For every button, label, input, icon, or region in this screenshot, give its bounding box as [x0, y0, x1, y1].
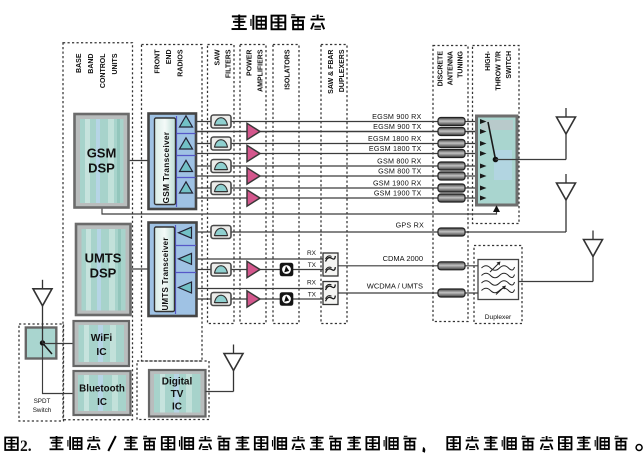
svg-text:EGSM 900 TX: EGSM 900 TX	[373, 122, 421, 131]
svg-text:END: END	[166, 50, 173, 65]
svg-text:DSP: DSP	[88, 161, 115, 176]
svg-text:TX: TX	[308, 292, 317, 299]
svg-text:2.: 2.	[20, 438, 32, 455]
svg-text:IC: IC	[172, 402, 182, 413]
svg-text:DISCRETE: DISCRETE	[438, 51, 445, 87]
svg-text:CONTROL: CONTROL	[100, 53, 107, 88]
svg-text:TV: TV	[171, 389, 184, 400]
svg-text:Switch: Switch	[33, 407, 52, 414]
svg-text:BASE: BASE	[76, 53, 83, 73]
svg-text:POWER: POWER	[247, 50, 254, 76]
svg-text:SPDT: SPDT	[34, 398, 51, 405]
svg-text:DSP: DSP	[90, 266, 117, 281]
svg-text:Bluetooth: Bluetooth	[79, 384, 125, 395]
svg-text:FRONT: FRONT	[155, 49, 162, 74]
svg-text:DUPLEXERS: DUPLEXERS	[339, 49, 346, 92]
svg-text:TUNING: TUNING	[458, 50, 465, 77]
svg-text:HIGH-: HIGH-	[485, 50, 492, 71]
svg-text:Digital: Digital	[162, 377, 193, 388]
svg-text:RX: RX	[307, 250, 317, 257]
svg-text:AMPLIFIERS: AMPLIFIERS	[258, 49, 265, 92]
svg-text:SAW: SAW	[215, 49, 222, 65]
svg-text:CDMA 2000: CDMA 2000	[383, 254, 423, 263]
svg-text:GSM 1900 RX: GSM 1900 RX	[373, 179, 422, 188]
svg-text:ANTENNA: ANTENNA	[448, 51, 455, 85]
svg-text:IC: IC	[96, 347, 107, 358]
svg-text:RADIOS: RADIOS	[178, 49, 185, 77]
svg-text:SWITCH: SWITCH	[506, 51, 513, 79]
svg-text:GSM 800 TX: GSM 800 TX	[378, 167, 421, 176]
svg-text:Duplexer: Duplexer	[485, 314, 512, 321]
svg-text:FILTERS: FILTERS	[226, 49, 233, 78]
svg-text:UNITS: UNITS	[112, 53, 119, 74]
svg-text:WiFi: WiFi	[91, 333, 113, 344]
svg-text:SAW & FBAR: SAW & FBAR	[328, 50, 335, 94]
svg-text:GSM 800 RX: GSM 800 RX	[377, 157, 421, 166]
svg-text:GSM: GSM	[87, 146, 117, 161]
svg-text:EGSM 1800 TX: EGSM 1800 TX	[369, 144, 422, 153]
svg-text:BAND: BAND	[88, 54, 95, 74]
svg-text:WCDMA / UMTS: WCDMA / UMTS	[367, 282, 423, 291]
svg-text:GSM Transceiver: GSM Transceiver	[161, 131, 171, 203]
svg-text:IC: IC	[97, 397, 107, 408]
svg-text:UMTS Transceiver: UMTS Transceiver	[161, 237, 170, 310]
svg-text:EGSM 900 RX: EGSM 900 RX	[372, 112, 421, 121]
svg-text:GPS RX: GPS RX	[396, 221, 424, 230]
svg-text:RX: RX	[307, 280, 317, 287]
svg-text:GSM 1900 TX: GSM 1900 TX	[374, 189, 422, 198]
svg-text:EGSM 1800 RX: EGSM 1800 RX	[368, 134, 422, 143]
svg-text:UMTS: UMTS	[85, 251, 122, 266]
svg-text:ISOLATORS: ISOLATORS	[285, 49, 292, 90]
svg-text:TX: TX	[308, 262, 317, 269]
svg-text:THROW T/R: THROW T/R	[496, 51, 503, 91]
